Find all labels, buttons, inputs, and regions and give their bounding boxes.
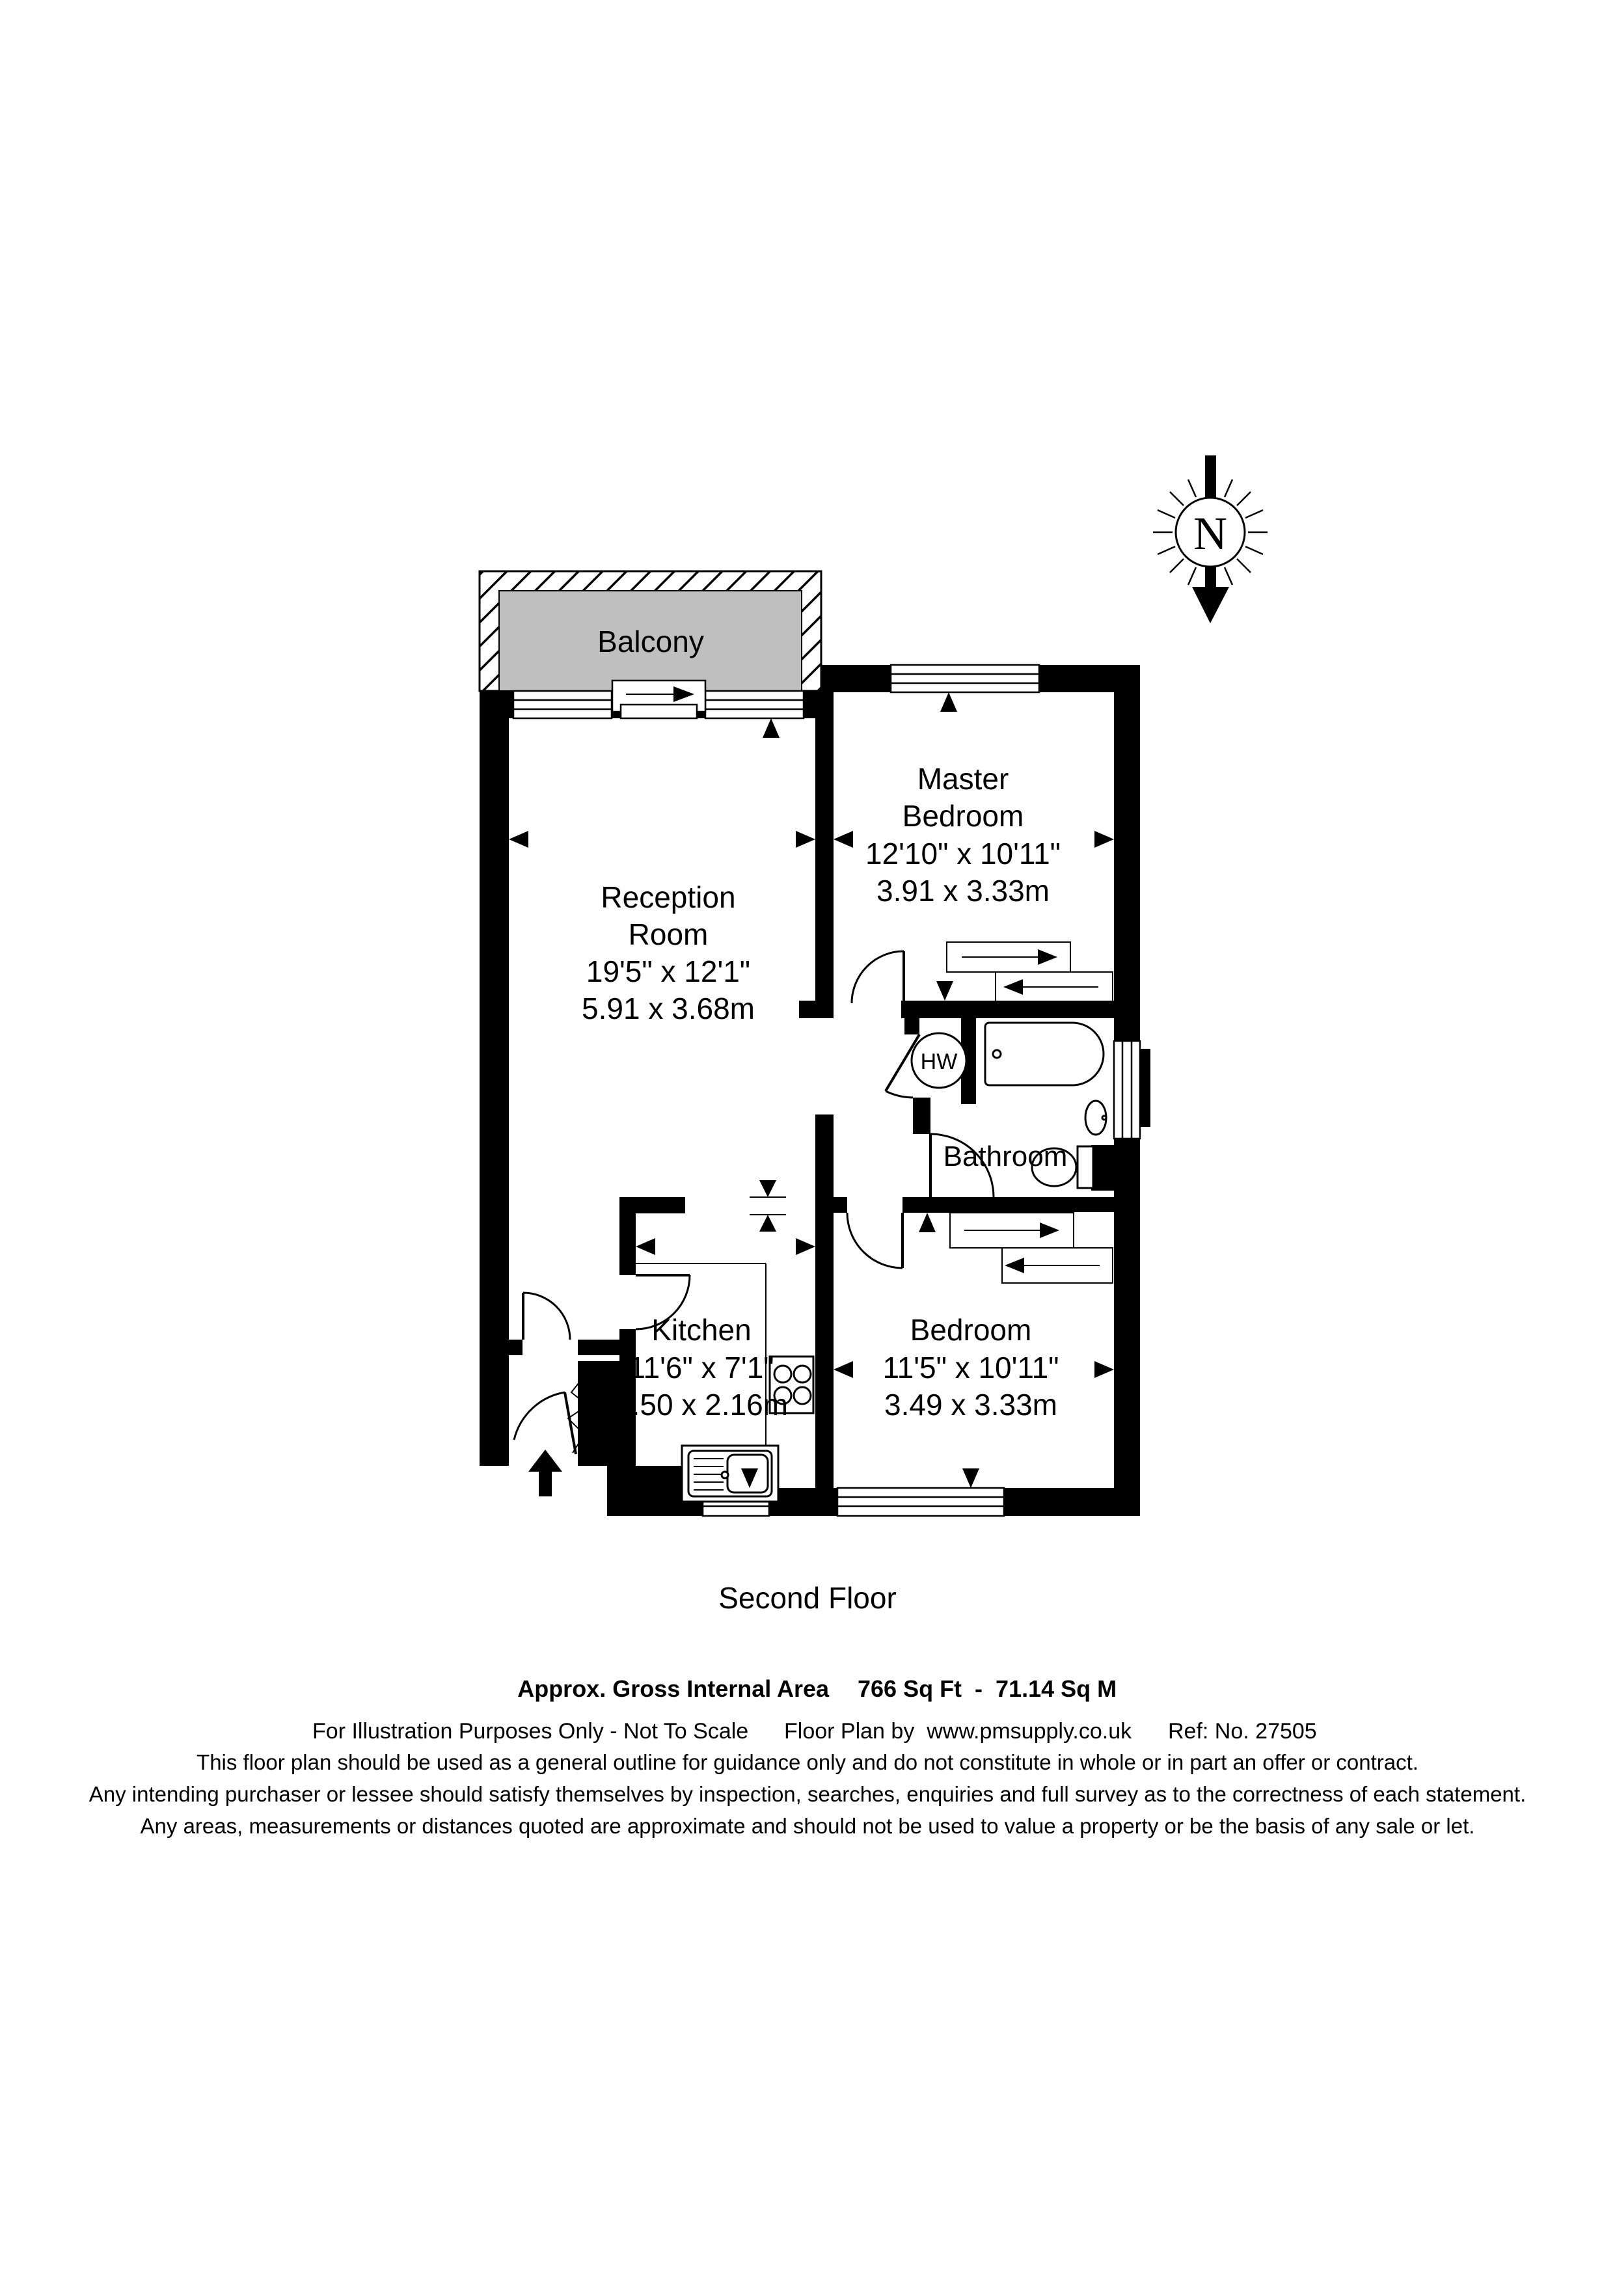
balcony-label: Balcony [597, 625, 704, 658]
disclaimer-line-2: Any intending purchaser or lessee should… [89, 1782, 1527, 1806]
disclaimer-line-1: This floor plan should be used as a gene… [197, 1750, 1418, 1774]
reception-name-2: Room [629, 917, 709, 951]
bedroom-name: Bedroom [910, 1313, 1032, 1347]
floor-plan-canvas: N Balcony Reception Room 19'5" x 12'1" 5… [0, 0, 1615, 2296]
master-bedroom-window [891, 665, 1039, 692]
kitchen-sink [682, 1446, 778, 1502]
wardrobe-slide-arrow-icon [1003, 979, 1023, 995]
master-bedroom-label-block: Master Bedroom 12'10" x 10'11" 3.91 x 3.… [865, 762, 1061, 908]
reception-door [523, 1293, 570, 1340]
balcony-sliding-door [612, 681, 705, 718]
master-size-metric: 3.91 x 3.33m [876, 874, 1050, 908]
illustration-note: For Illustration Purposes Only - Not To … [312, 1719, 748, 1744]
bedroom-label-block: Bedroom 11'5" x 10'11" 3.49 x 3.33m [882, 1313, 1059, 1422]
reception-size-imperial: 19'5" x 12'1" [586, 954, 750, 988]
wardrobe-slide-arrow-icon [1038, 949, 1057, 965]
area-value: 766 Sq Ft - 71.14 Sq M [858, 1675, 1117, 1702]
reception-window-left [513, 691, 612, 718]
kitchen-size-metric: 3.50 x 2.16m [615, 1388, 788, 1422]
master-size-imperial: 12'10" x 10'11" [865, 837, 1061, 871]
master-name-1: Master [917, 762, 1009, 796]
entrance-arrow-icon [528, 1450, 562, 1496]
bathroom-sink [1085, 1101, 1106, 1135]
kitchen-size-imperial: 11'6" x 7'1" [629, 1351, 774, 1384]
narrow-dimension-marker [750, 1180, 786, 1232]
kitchen-name: Kitchen [651, 1313, 751, 1347]
credit-note: Floor Plan by www.pmsupply.co.uk [784, 1719, 1132, 1744]
floor-plan-page: N Balcony Reception Room 19'5" x 12'1" 5… [0, 0, 1615, 2296]
bathroom-window [1114, 1041, 1140, 1139]
bedroom-size-metric: 3.49 x 3.33m [884, 1388, 1057, 1422]
bath-tap-icon [993, 1050, 1001, 1058]
reception-window-right [705, 691, 804, 718]
bath-tub [985, 1023, 1104, 1085]
bedroom-wardrobe [950, 1213, 1113, 1283]
floor-title: Second Floor [718, 1581, 897, 1615]
compass-arrowhead-icon [1192, 587, 1229, 623]
compass-north-label: N [1193, 507, 1227, 560]
compass: N [1153, 455, 1268, 623]
reception-name-1: Reception [601, 880, 735, 914]
bedroom-size-imperial: 11'5" x 10'11" [882, 1351, 1059, 1384]
reception-size-metric: 5.91 x 3.68m [582, 992, 755, 1025]
bathroom-label: Bathroom [943, 1141, 1068, 1172]
area-label: Approx. Gross Internal Area [517, 1675, 830, 1702]
bedroom-window [837, 1488, 1004, 1516]
wardrobe-slide-arrow-icon [1040, 1222, 1059, 1238]
master-wardrobe [947, 942, 1113, 1002]
wardrobe-slide-arrow-icon [1005, 1258, 1024, 1273]
disclaimer-line-3: Any areas, measurements or distances quo… [141, 1814, 1475, 1838]
bedroom-door [847, 1213, 903, 1268]
master-name-2: Bedroom [903, 799, 1024, 833]
reference-number: Ref: No. 27505 [1168, 1719, 1317, 1744]
reception-label-block: Reception Room 19'5" x 12'1" 5.91 x 3.68… [582, 880, 755, 1025]
master-bedroom-door [852, 951, 904, 1003]
hw-label: HW [921, 1049, 958, 1074]
